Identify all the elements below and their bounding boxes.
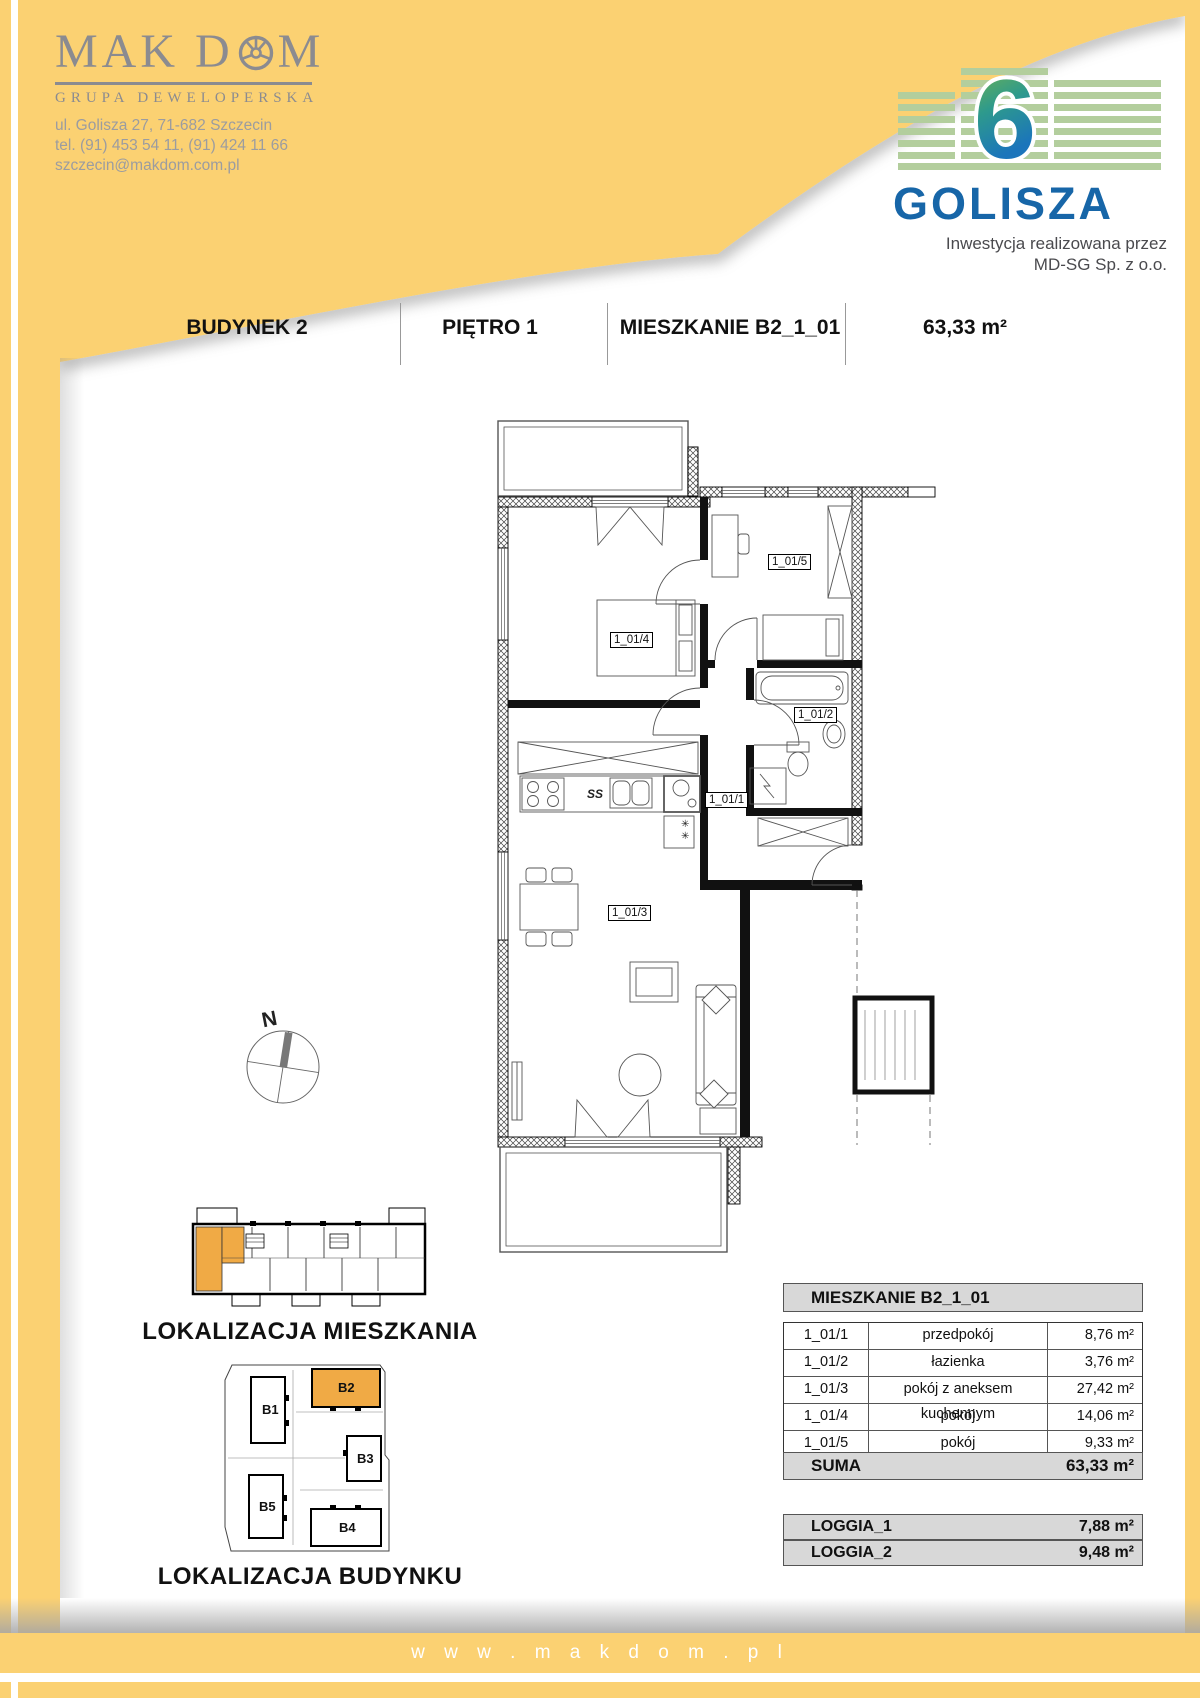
header-divider-3 bbox=[845, 303, 846, 365]
table-row: 1_01/2 łazienka 3,76 m² bbox=[784, 1350, 1142, 1377]
hob-mark: SS bbox=[587, 787, 603, 801]
apartment-location-title: LOKALIZACJA MIESZKANIA bbox=[140, 1318, 480, 1346]
suma-bar: SUMA 63,33 m² bbox=[783, 1452, 1143, 1480]
loggia-row-2: LOGGIA_2 9,48 m² bbox=[783, 1540, 1143, 1566]
company-name-part2: M bbox=[278, 26, 325, 78]
loggia-row-1: LOGGIA_1 7,88 m² bbox=[783, 1514, 1143, 1540]
header-floor: PIĘTRO 1 bbox=[410, 315, 570, 341]
row-code: 1_01/3 bbox=[784, 1377, 869, 1403]
loggia-2-label: LOGGIA_2 bbox=[784, 1544, 892, 1562]
company-email[interactable]: szczecin@makdom.com.pl bbox=[55, 156, 355, 176]
room-label-hall: 1_01/1 bbox=[705, 792, 748, 808]
golisza-number: 6 bbox=[974, 57, 1036, 170]
suma-value: 63,33 m² bbox=[1066, 1456, 1142, 1476]
company-logo: MAK D M bbox=[55, 26, 355, 78]
footer-band: w w w . m a k d o m . p l bbox=[0, 1633, 1200, 1673]
loggia-1-label: LOGGIA_1 bbox=[784, 1518, 892, 1536]
building-label-b3: B3 bbox=[357, 1451, 374, 1466]
golisza-buildings-icon: 6 bbox=[893, 52, 1167, 170]
apartment-location-diagram bbox=[185, 1203, 435, 1311]
fridge-mark: ✳ ✳ bbox=[681, 819, 693, 843]
row-name: pokój bbox=[869, 1404, 1048, 1430]
table-row: 1_01/3 pokój z aneksem kuchennym 27,42 m… bbox=[784, 1377, 1142, 1404]
room-label-bath: 1_01/2 bbox=[794, 707, 837, 723]
brochure-page: MAK D M GRUPA DEWELOPERSKA ul. Golisza 2… bbox=[0, 0, 1200, 1698]
row-code: 1_01/4 bbox=[784, 1404, 869, 1430]
interior-walls bbox=[508, 497, 862, 1137]
compass-icon bbox=[233, 1005, 333, 1115]
header-divider-2 bbox=[607, 303, 608, 365]
floor-plan bbox=[440, 380, 960, 1280]
loggia-1-outline bbox=[498, 421, 698, 496]
staircase-block bbox=[855, 890, 932, 1145]
row-area: 14,06 m² bbox=[1048, 1404, 1142, 1430]
left-pinstripe bbox=[11, 0, 18, 1698]
apartment-table: 1_01/1 przedpokój 8,76 m² 1_01/2 łazienk… bbox=[783, 1322, 1143, 1458]
footer-white-stripe bbox=[0, 1673, 1200, 1682]
company-logo-block: MAK D M GRUPA DEWELOPERSKA ul. Golisza 2… bbox=[55, 26, 355, 176]
row-area: 27,42 m² bbox=[1048, 1377, 1142, 1403]
loggia-2-outline bbox=[500, 1147, 727, 1252]
building-location-title: LOKALIZACJA BUDYNKU bbox=[150, 1563, 470, 1591]
company-subtitle: GRUPA DEWELOPERSKA bbox=[55, 90, 355, 107]
company-address: ul. Golisza 27, 71-682 Szczecin bbox=[55, 116, 355, 136]
row-code: 1_01/2 bbox=[784, 1350, 869, 1376]
logo-rule bbox=[55, 82, 312, 85]
investment-name: GOLISZA bbox=[893, 181, 1167, 227]
wheel-icon bbox=[236, 32, 276, 72]
investment-logo-block: 6 GOLISZA Inwestycja realizowana przez M… bbox=[893, 52, 1167, 275]
row-name: przedpokój bbox=[869, 1323, 1048, 1349]
table-row: 1_01/1 przedpokój 8,76 m² bbox=[784, 1323, 1142, 1350]
header-area: 63,33 m² bbox=[880, 315, 1050, 341]
company-name-part1: MAK D bbox=[55, 26, 234, 78]
row-code: 1_01/1 bbox=[784, 1323, 869, 1349]
doors bbox=[575, 507, 852, 1137]
investment-tagline-2: MD-SG Sp. z o.o. bbox=[893, 254, 1167, 275]
suma-label: SUMA bbox=[784, 1456, 861, 1476]
room-label-room5: 1_01/5 bbox=[768, 554, 811, 570]
loggia-1-value: 7,88 m² bbox=[1079, 1518, 1142, 1536]
building-location-diagram bbox=[213, 1358, 403, 1558]
room-label-living: 1_01/3 bbox=[608, 905, 651, 921]
footer-shadow bbox=[0, 1598, 1200, 1633]
table-row: 1_01/4 pokój 14,06 m² bbox=[784, 1404, 1142, 1431]
investment-tagline-1: Inwestycja realizowana przez bbox=[893, 233, 1167, 254]
room-label-bedroom: 1_01/4 bbox=[610, 632, 653, 648]
company-phone: tel. (91) 453 54 11, (91) 424 11 66 bbox=[55, 136, 355, 156]
loggia-2-value: 9,48 m² bbox=[1079, 1544, 1142, 1562]
building-label-b1: B1 bbox=[262, 1402, 279, 1417]
header-divider-1 bbox=[400, 303, 401, 365]
header-apartment: MIESZKANIE B2_1_01 bbox=[615, 315, 845, 341]
left-inner-shadow bbox=[60, 358, 84, 1598]
building-label-b2: B2 bbox=[338, 1380, 355, 1395]
row-name: pokój z aneksem kuchennym bbox=[869, 1377, 1048, 1403]
apartment-table-title: MIESZKANIE B2_1_01 bbox=[784, 1288, 990, 1308]
footer-website[interactable]: w w w . m a k d o m . p l bbox=[411, 1642, 789, 1663]
building-label-b5: B5 bbox=[259, 1499, 276, 1514]
building-label-b4: B4 bbox=[339, 1520, 356, 1535]
apartment-table-title-bar: MIESZKANIE B2_1_01 bbox=[783, 1283, 1143, 1312]
header-building: BUDYNEK 2 bbox=[167, 315, 327, 341]
row-area: 8,76 m² bbox=[1048, 1323, 1142, 1349]
row-name: łazienka bbox=[869, 1350, 1048, 1376]
row-area: 3,76 m² bbox=[1048, 1350, 1142, 1376]
